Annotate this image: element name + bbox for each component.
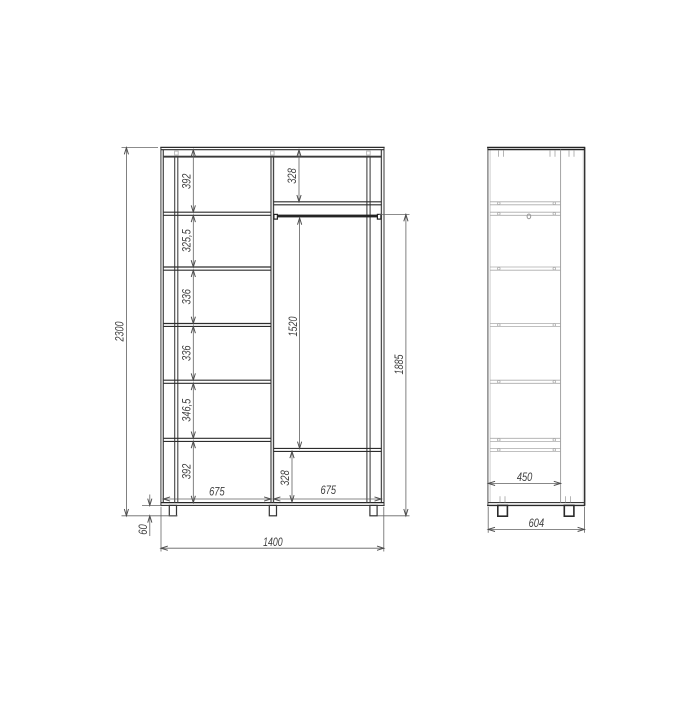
svg-text:325,5: 325,5 [179, 229, 193, 252]
svg-text:675: 675 [321, 483, 337, 497]
svg-text:60: 60 [136, 524, 150, 535]
svg-text:450: 450 [517, 470, 533, 484]
svg-text:604: 604 [529, 516, 545, 530]
svg-text:1520: 1520 [286, 316, 300, 336]
svg-text:328: 328 [285, 168, 299, 184]
svg-text:392: 392 [179, 173, 193, 189]
svg-text:2300: 2300 [113, 321, 127, 342]
svg-text:336: 336 [179, 289, 193, 305]
svg-text:392: 392 [179, 464, 193, 480]
svg-text:336: 336 [179, 345, 193, 361]
svg-text:346,5: 346,5 [179, 398, 193, 421]
svg-text:1400: 1400 [263, 535, 283, 549]
svg-text:328: 328 [278, 470, 292, 486]
svg-text:675: 675 [209, 485, 225, 499]
svg-text:1885: 1885 [392, 354, 406, 374]
